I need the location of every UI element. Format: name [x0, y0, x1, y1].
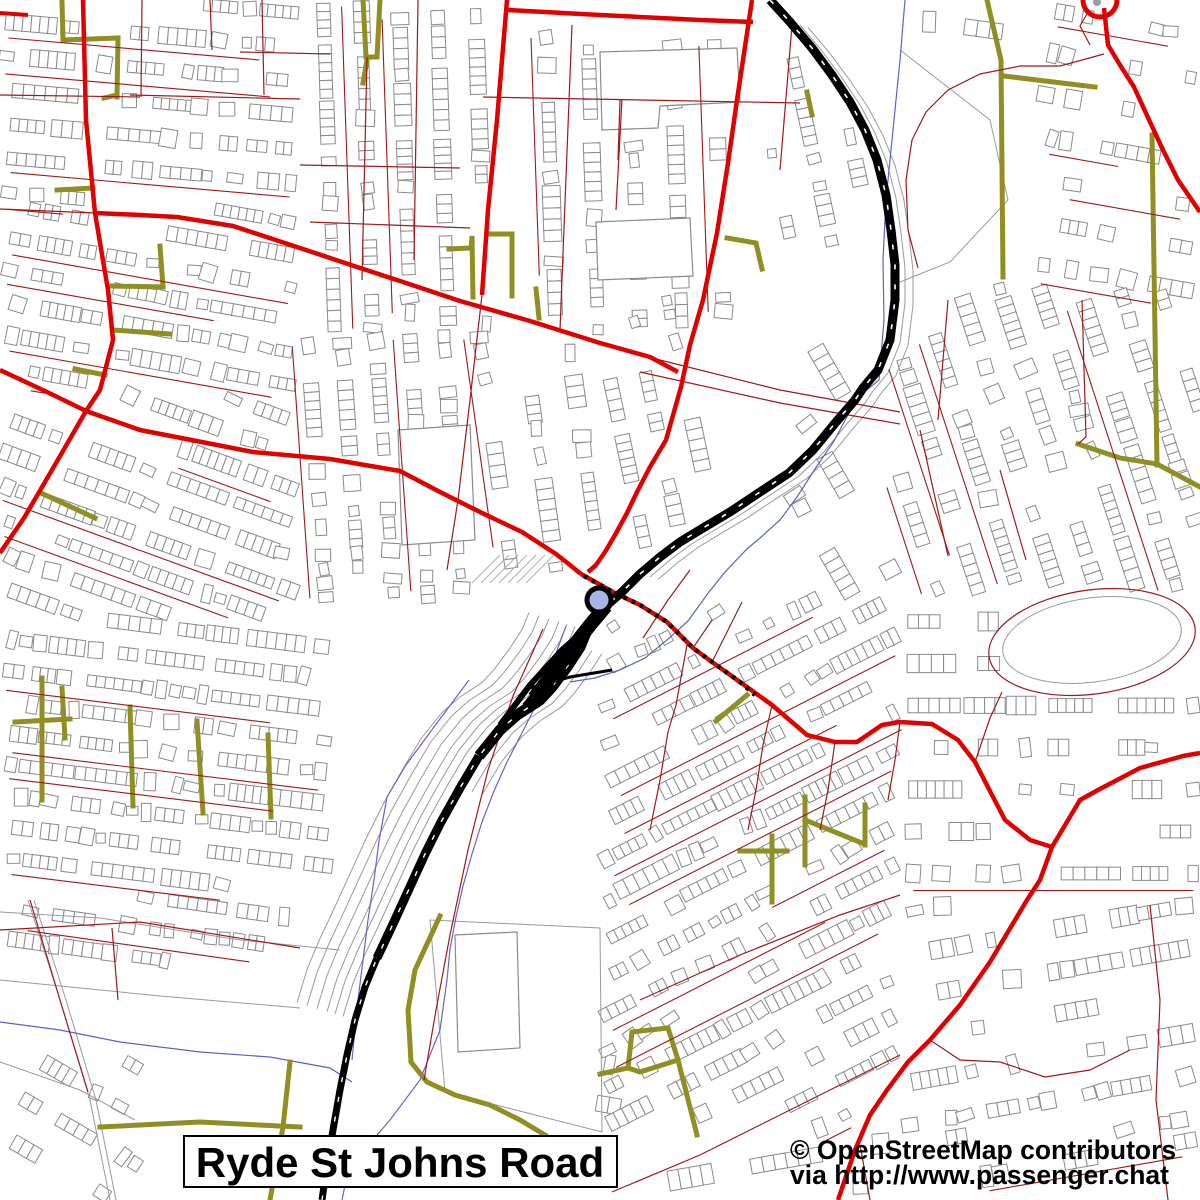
svg-text:Ryde St Johns Road: Ryde St Johns Road [196, 1139, 604, 1186]
svg-text:via http://www.passenger.chat: via http://www.passenger.chat [790, 1160, 1169, 1190]
